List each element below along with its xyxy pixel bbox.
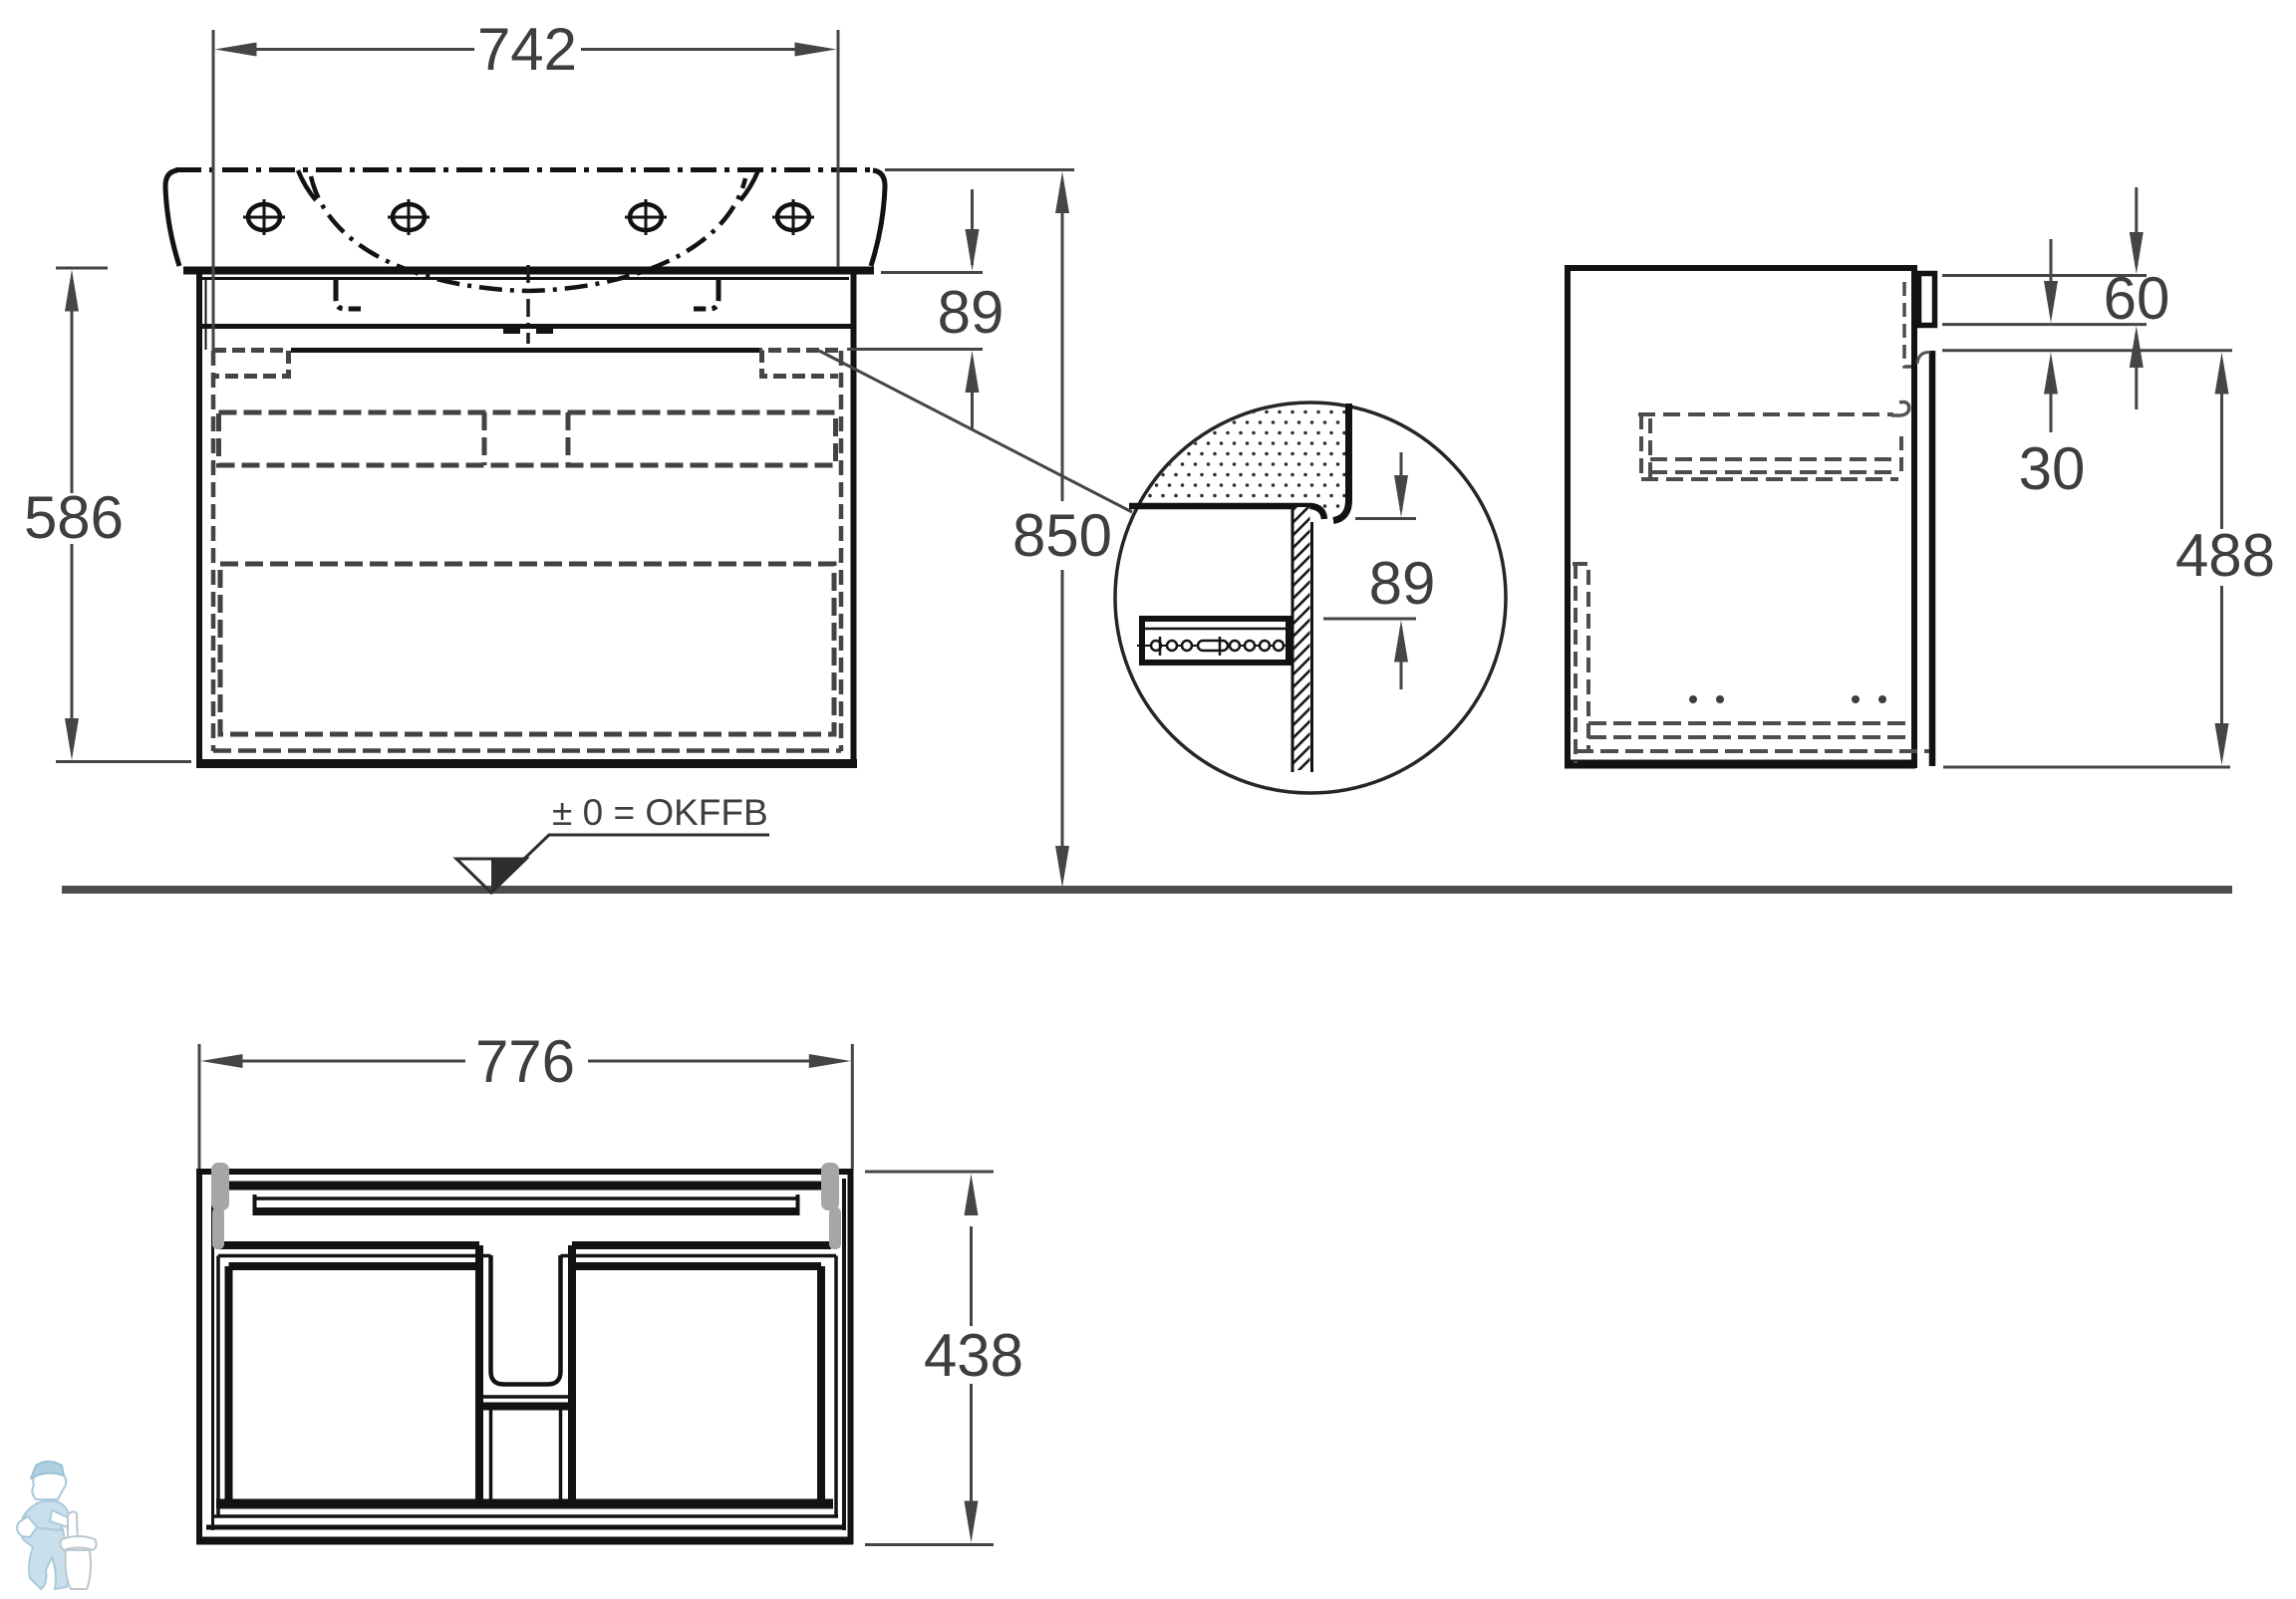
svg-text:± 0 = OKFFB: ± 0 = OKFFB — [552, 792, 768, 833]
svg-text:89: 89 — [1369, 550, 1436, 617]
svg-text:742: 742 — [477, 16, 577, 83]
svg-text:89: 89 — [938, 279, 1004, 346]
svg-text:776: 776 — [475, 1028, 575, 1095]
svg-text:586: 586 — [24, 484, 124, 551]
svg-text:438: 438 — [924, 1322, 1023, 1389]
svg-text:850: 850 — [1012, 502, 1112, 569]
svg-text:60: 60 — [2104, 265, 2170, 332]
svg-text:30: 30 — [2019, 435, 2086, 502]
svg-text:488: 488 — [2175, 522, 2275, 589]
